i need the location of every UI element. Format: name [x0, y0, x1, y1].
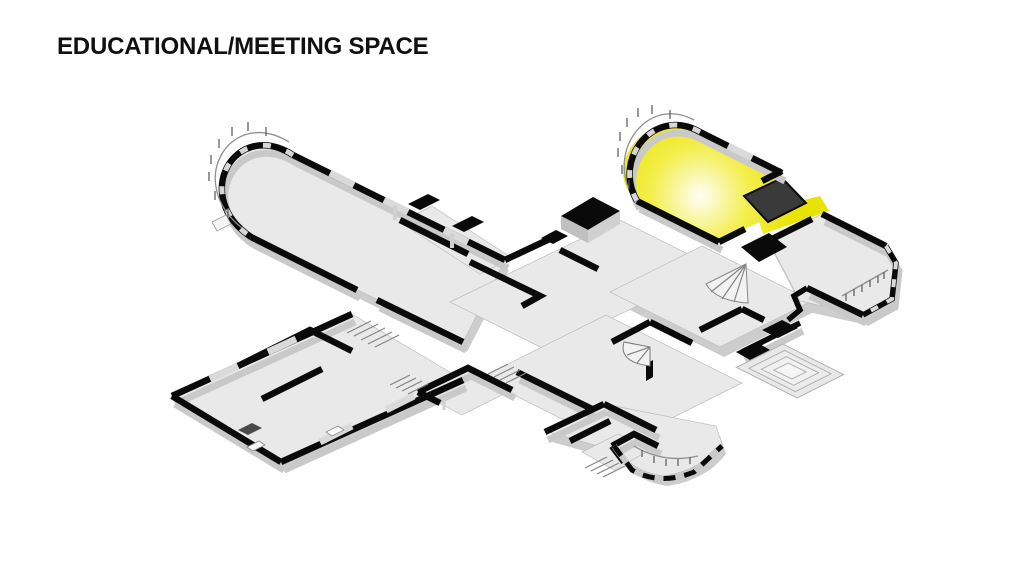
- corridor-wall-stub: [408, 194, 440, 210]
- slide: EDUCATIONAL/MEETING SPACE: [0, 0, 1024, 576]
- floor-plan-drawing: [0, 0, 1024, 576]
